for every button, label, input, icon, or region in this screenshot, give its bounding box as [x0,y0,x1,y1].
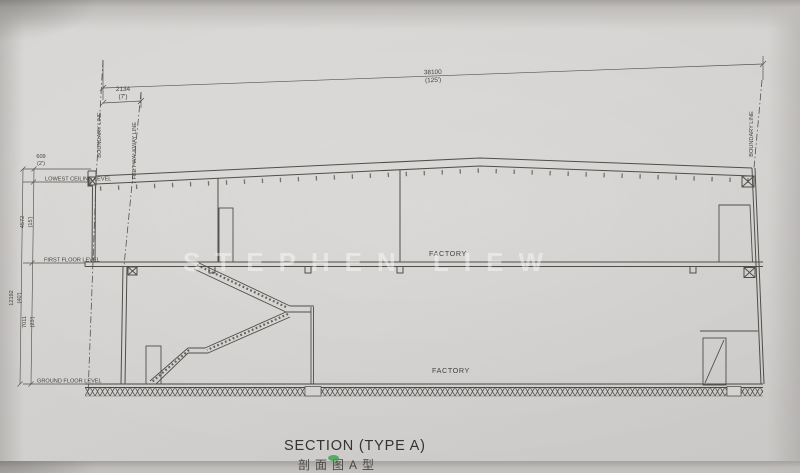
total-width-ft: (125') [425,77,441,85]
beam-box-slab-right [744,268,755,278]
stair-small-landing [188,348,208,353]
section-drawing: 38100 (125') 2134 (7') BOUNDARY LINE 7 F… [0,0,800,461]
first-floor-level-label: FIRST FLOOR LEVEL [44,258,100,264]
ground-hatch [85,388,763,397]
left-dimension-chain [18,167,92,387]
site-lines [88,60,762,396]
ground-floor-items [146,331,758,385]
total-height-mm: 12192 [9,290,15,306]
first-to-ground-ft: (23') [30,316,36,327]
photo-of-section-drawing: { "title": { "text": "SECTION (TYPE A)",… [0,0,800,461]
drawing-title: SECTION (TYPE A) [284,438,426,454]
top-dimension-label: 38100 (125') [424,69,443,85]
watermark-text: STEPHEN LIEW [183,247,703,278]
ceiling-to-first-ft: (15') [28,216,34,227]
parapet-ft: (2') [37,161,45,167]
walkway-mm: 2134 [116,86,131,93]
roof-structure [88,158,754,189]
stair-mid-landing [286,306,314,312]
factory-label-lower: FACTORY [432,366,470,375]
total-width-mm: 38100 [424,69,442,77]
beam-box-slab-left [128,267,137,275]
first-to-ground-mm: 7011 [22,316,28,328]
lowest-ceiling-level-label: LOWEST CEILING LEVEL [45,177,111,183]
green-highlight-mark [328,455,339,461]
total-height-ft: (40') [17,292,23,303]
stair-steps [207,314,288,350]
walkway-column [121,266,127,384]
footing-box [727,387,741,397]
staircase [150,263,314,384]
boundary-line-right [754,80,762,168]
stair-landing-wall [311,307,314,384]
inner-chain [31,169,34,384]
ceiling-to-first-mm: 4572 [20,216,26,228]
ground-slab [85,384,763,396]
boundary-left-label: BOUNDARY LINE [97,112,103,158]
upper-door-right [719,205,753,262]
parapet-mm: 609 [36,154,45,160]
ground-floor-level-label: GROUND FLOOR LEVEL [37,379,102,385]
outer-chain [20,169,23,384]
footing-box [305,387,321,397]
door-leaf-diagonal [705,340,724,383]
walkway-ft: (7') [118,94,127,101]
stair-steps [152,350,189,382]
boundary-right-label: BOUNDARY LINE [749,111,755,157]
